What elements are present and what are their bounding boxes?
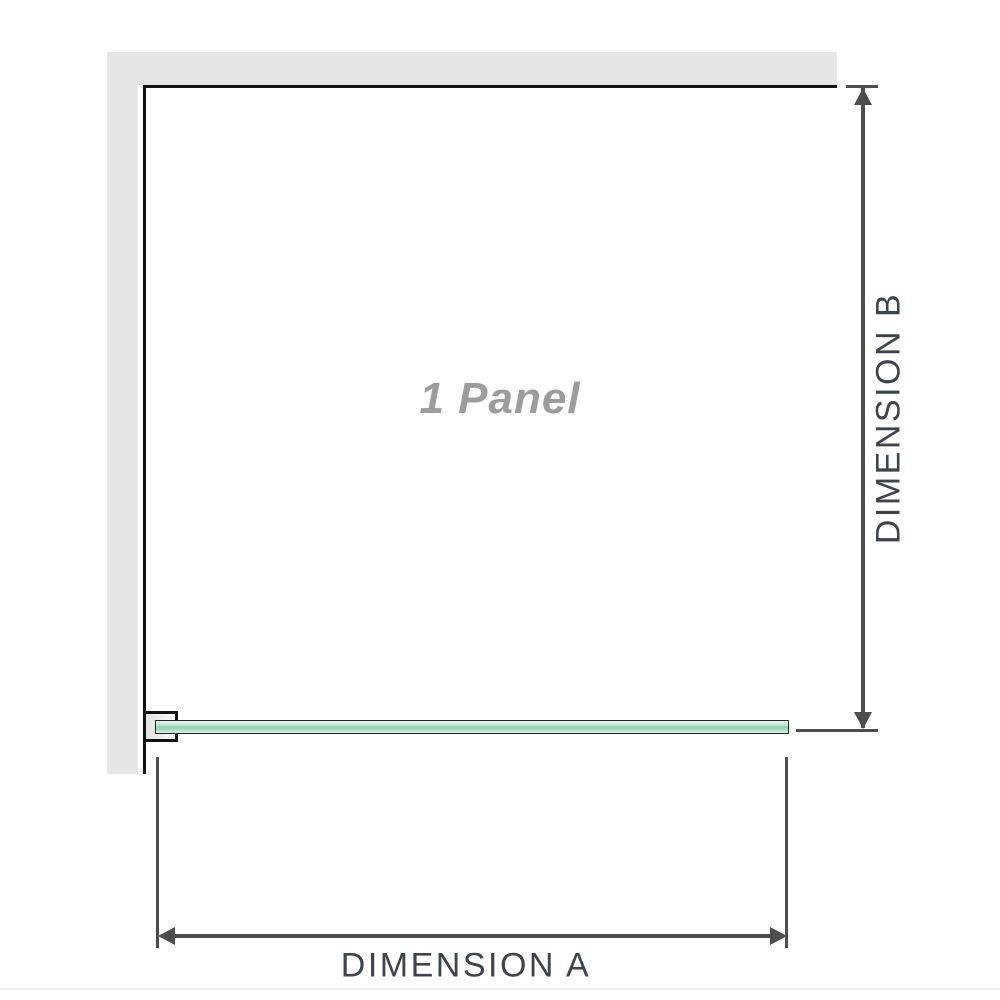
panel-dimension-diagram: 1 Panel DIMENSION B DIMENSION A (0, 0, 1000, 1000)
arrow-down-icon (854, 712, 872, 729)
dimension-a-line (161, 934, 783, 938)
dimension-a-right-extension (785, 757, 788, 948)
enclosure-top-line (143, 85, 837, 88)
dimension-b-label: DIMENSION B (870, 292, 909, 544)
dimension-b-line (861, 88, 865, 728)
dimension-b-bottom-extension (796, 729, 878, 732)
wall-left (107, 52, 138, 774)
glass-panel (155, 720, 789, 734)
panel-count-label: 1 Panel (419, 374, 580, 424)
footer-divider (0, 988, 1000, 990)
arrow-up-icon (854, 88, 872, 105)
arrow-right-icon (770, 927, 787, 945)
dimension-a-label: DIMENSION A (341, 947, 591, 986)
arrow-left-icon (158, 927, 175, 945)
enclosure-left-line (143, 85, 146, 774)
wall-top (107, 52, 837, 85)
dimension-a-left-extension (156, 757, 159, 948)
